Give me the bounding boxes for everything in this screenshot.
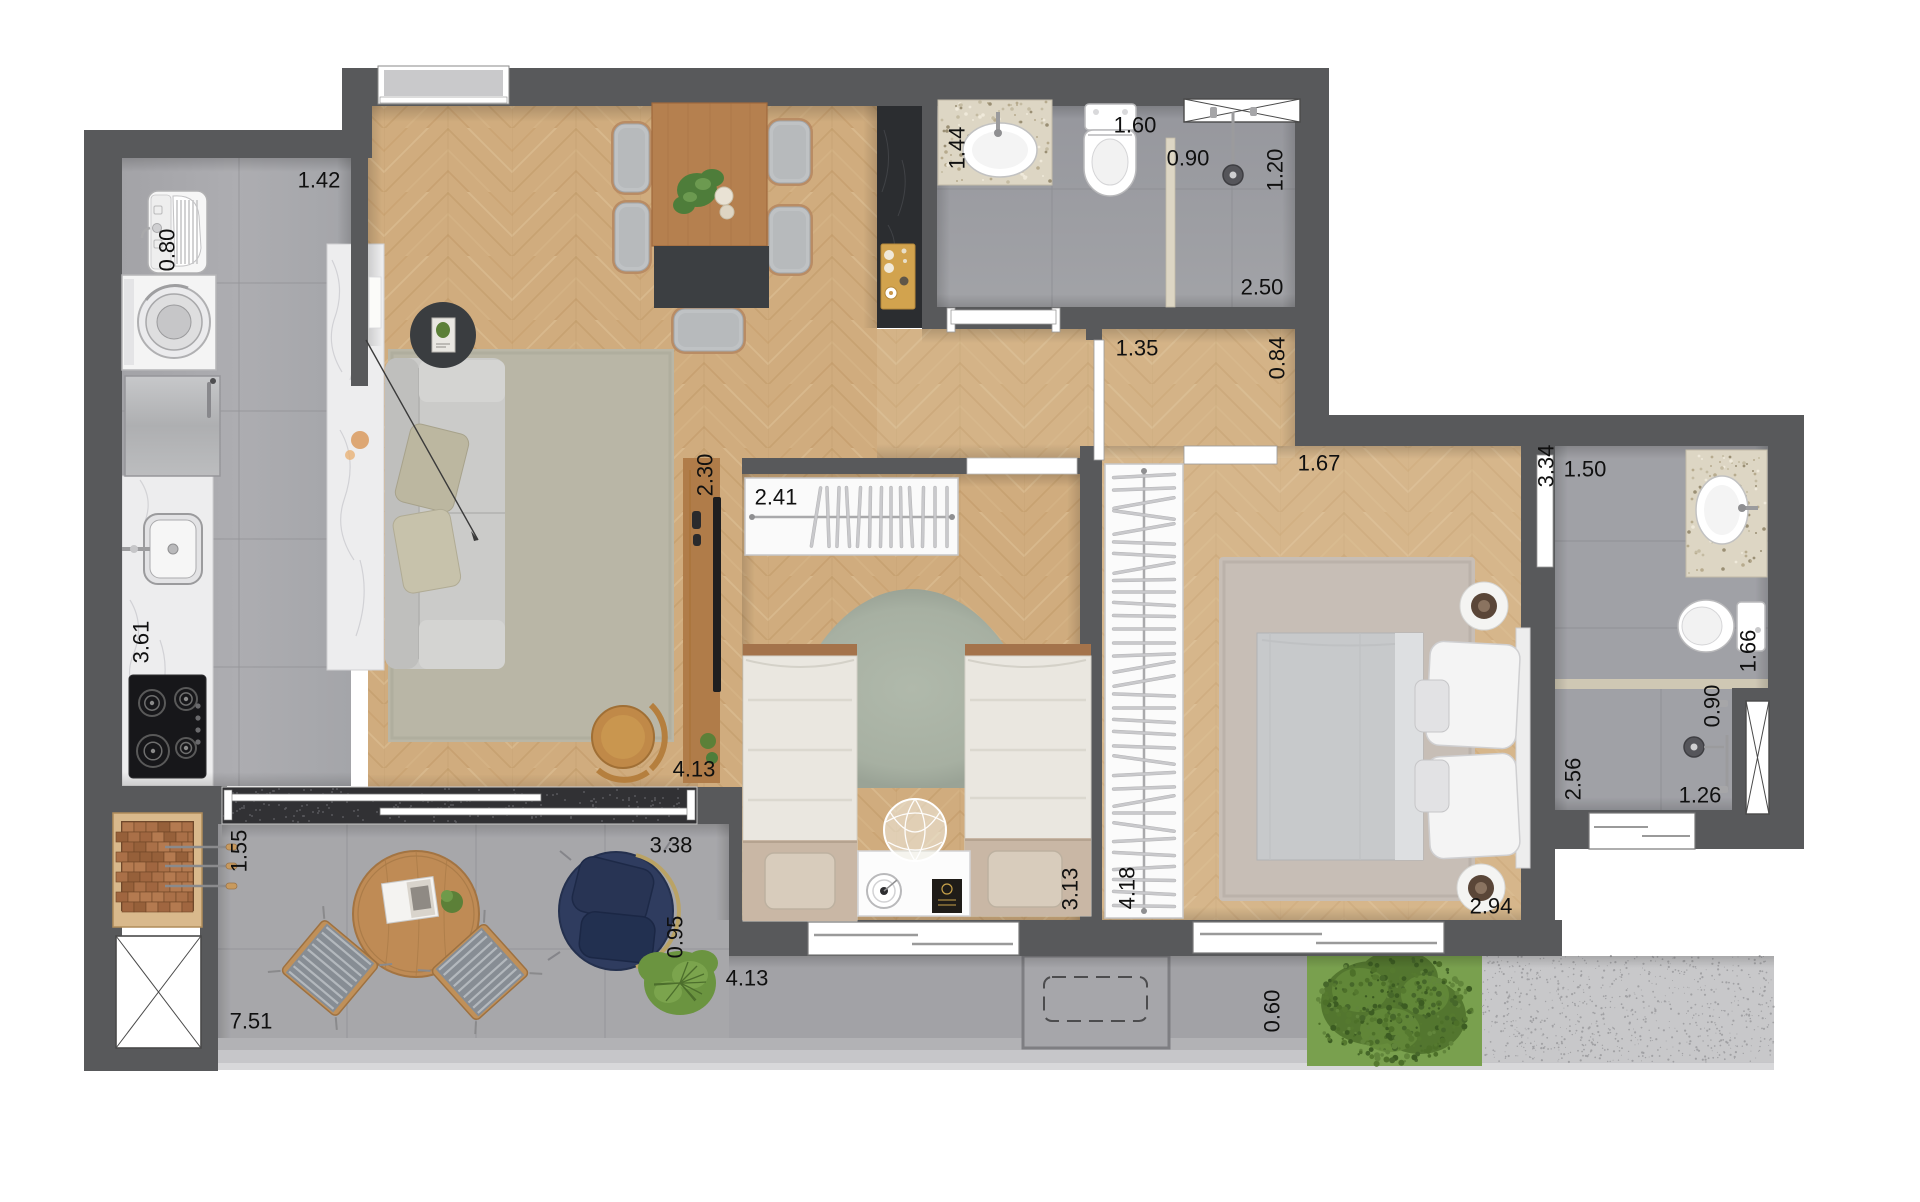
svg-text:3.34: 3.34 [1534,445,1559,488]
svg-text:1.20: 1.20 [1263,149,1288,192]
svg-text:0.80: 0.80 [155,229,180,272]
svg-text:1.67: 1.67 [1298,451,1341,476]
svg-text:7.51: 7.51 [230,1009,273,1034]
svg-text:1.35: 1.35 [1116,336,1159,361]
svg-text:0.84: 0.84 [1265,337,1290,380]
svg-text:1.44: 1.44 [945,127,970,170]
svg-text:0.60: 0.60 [1260,990,1285,1033]
svg-text:0.95: 0.95 [663,916,688,959]
svg-text:1.55: 1.55 [227,830,252,873]
svg-text:1.26: 1.26 [1679,783,1722,808]
svg-text:2.41: 2.41 [755,485,798,510]
svg-text:2.50: 2.50 [1241,275,1284,300]
svg-text:1.60: 1.60 [1114,113,1157,138]
svg-text:1.50: 1.50 [1564,457,1607,482]
svg-text:3.13: 3.13 [1058,868,1083,911]
svg-text:2.30: 2.30 [693,454,718,497]
svg-text:1.42: 1.42 [298,168,341,193]
svg-text:4.13: 4.13 [673,757,716,782]
svg-text:4.18: 4.18 [1115,867,1140,910]
svg-text:0.90: 0.90 [1167,146,1210,171]
svg-text:2.94: 2.94 [1470,894,1513,919]
svg-text:3.61: 3.61 [129,621,154,664]
svg-text:3.38: 3.38 [650,833,693,858]
svg-text:2.56: 2.56 [1561,758,1586,801]
svg-text:1.66: 1.66 [1736,630,1761,673]
svg-text:4.13: 4.13 [726,966,769,991]
svg-text:0.90: 0.90 [1700,685,1725,728]
